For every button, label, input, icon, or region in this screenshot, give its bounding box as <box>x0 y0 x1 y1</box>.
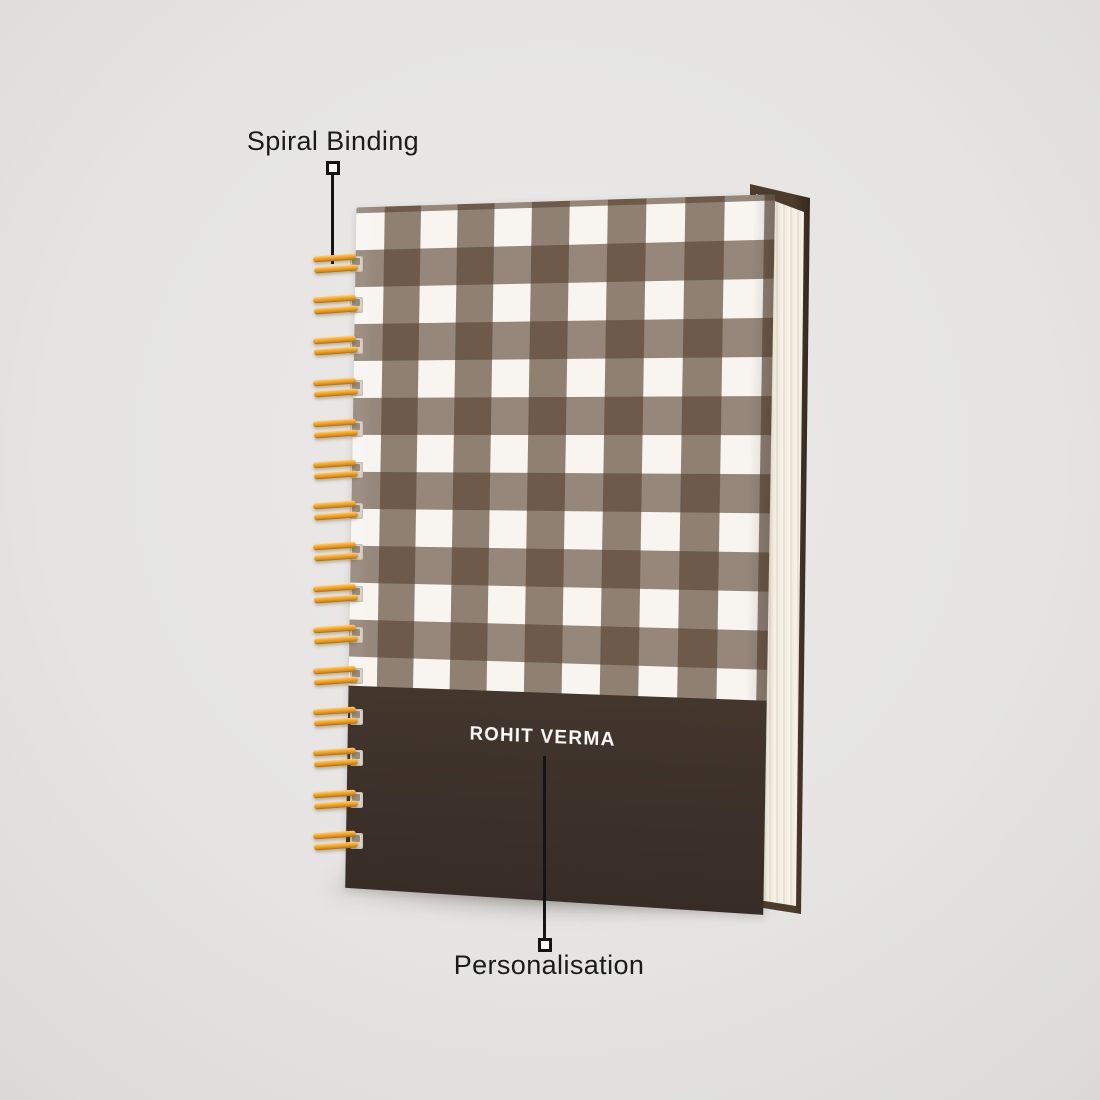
personalisation-label: Personalisation <box>399 950 699 981</box>
coil-wire-bottom <box>314 347 358 356</box>
front-cover: ROHIT VERMA <box>345 194 775 915</box>
coil-wire-bottom <box>314 429 358 438</box>
coil-wire-bottom <box>314 512 358 521</box>
spiral-coil <box>313 378 365 400</box>
spiral-coil <box>313 501 365 523</box>
spiral-coil <box>313 542 365 564</box>
spiral-coil <box>313 419 365 441</box>
coil-wire-bottom <box>314 470 358 479</box>
spiral-coil <box>313 790 365 812</box>
product-scene: Spiral Binding ROHIT VERMA Personalisati… <box>0 0 1100 1100</box>
spiral-coil <box>313 336 365 358</box>
spiral-coil <box>313 666 365 688</box>
coil-wire-bottom <box>314 388 358 397</box>
coil-wire-bottom <box>314 553 358 562</box>
personalisation-leader-line <box>543 756 546 938</box>
coil-wire-bottom <box>314 676 358 685</box>
personalisation-band <box>345 686 767 915</box>
coil-wire-bottom <box>314 635 358 644</box>
coil-wire-bottom <box>314 264 358 273</box>
spiral-coil <box>313 707 365 729</box>
spiral-coil <box>313 831 365 853</box>
coil-wire-bottom <box>314 594 358 603</box>
spiral-coil <box>313 748 365 770</box>
spiral-binding-coils <box>313 254 365 854</box>
coil-wire-bottom <box>314 306 358 315</box>
spiral-coil <box>313 625 365 647</box>
coil-wire-bottom <box>314 759 358 768</box>
spiral-coil <box>313 584 365 606</box>
spiral-binding-label: Spiral Binding <box>183 126 483 157</box>
coil-wire-bottom <box>314 800 358 809</box>
spiral-coil <box>313 295 365 317</box>
spiral-binding-leader-line <box>331 174 334 264</box>
coil-wire-bottom <box>314 718 358 727</box>
spiral-coil <box>313 460 365 482</box>
coil-wire-bottom <box>314 841 358 850</box>
spiral-binding-marker <box>326 161 340 175</box>
spiral-coil <box>313 254 365 276</box>
